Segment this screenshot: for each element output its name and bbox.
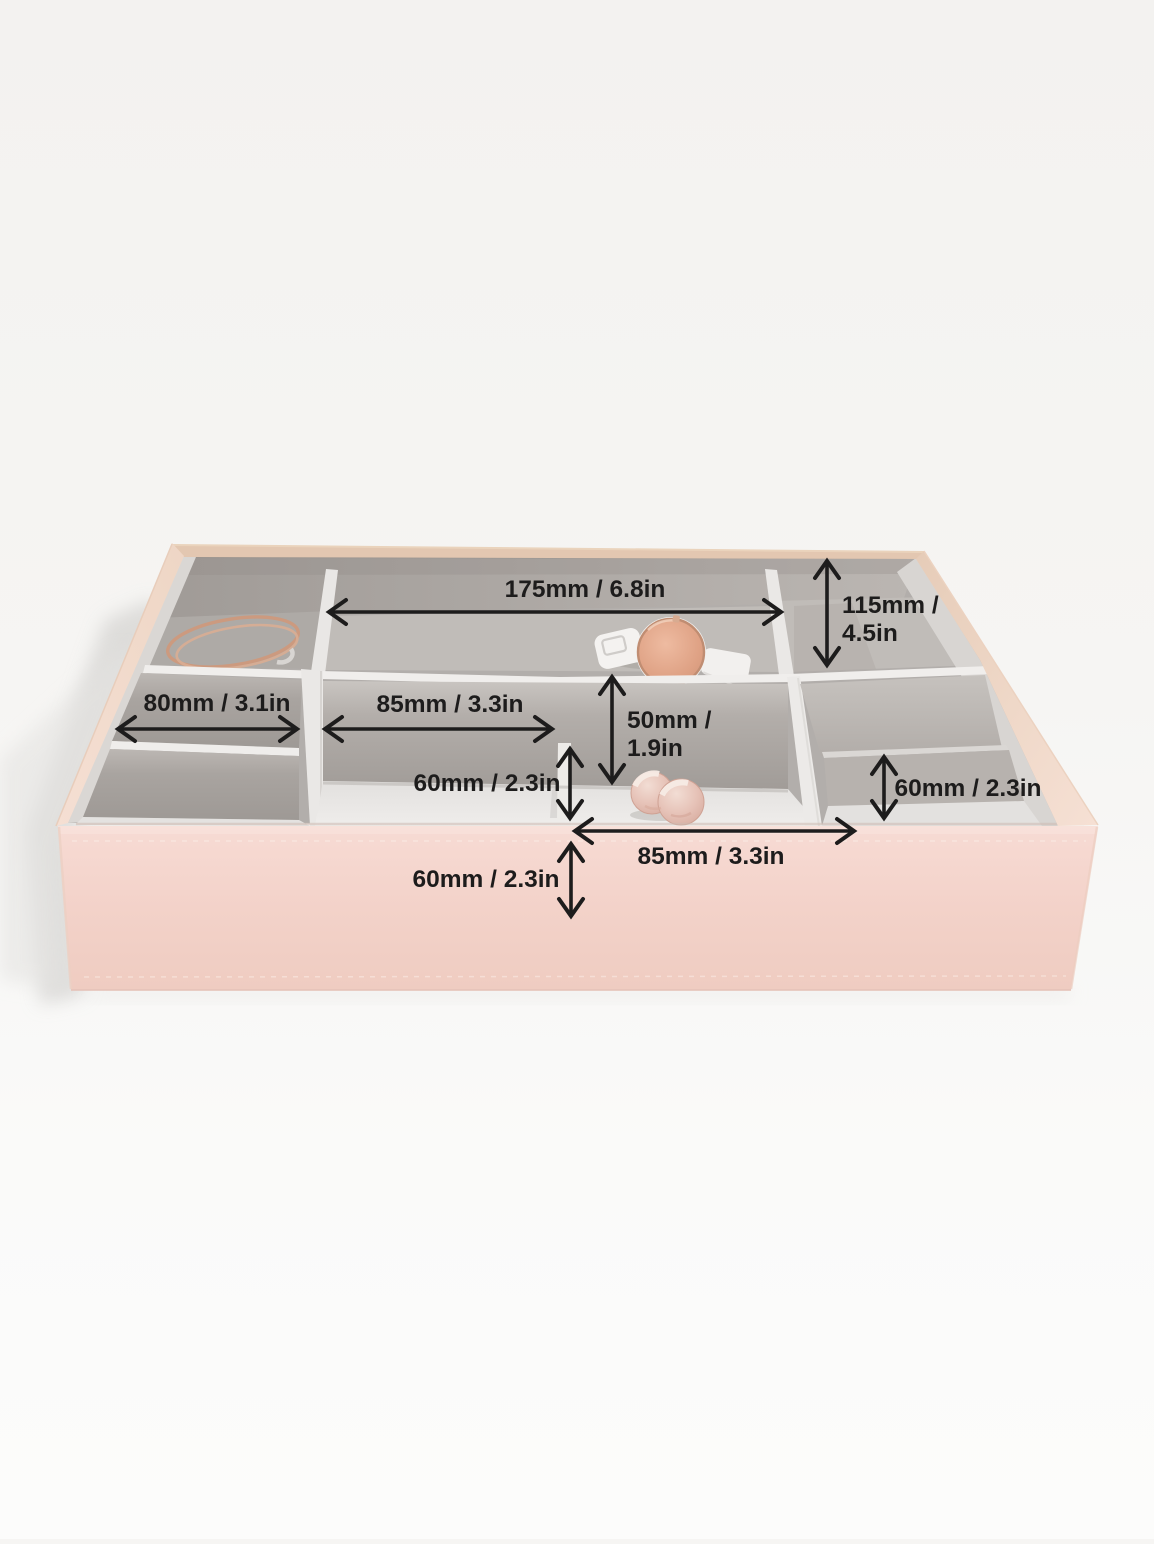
svg-text:80mm / 3.1in: 80mm / 3.1in bbox=[143, 690, 290, 717]
svg-text:4.5in: 4.5in bbox=[842, 620, 898, 647]
svg-text:50mm /: 50mm / bbox=[627, 707, 712, 734]
svg-text:115mm /: 115mm / bbox=[842, 592, 939, 619]
svg-text:85mm / 3.3in: 85mm / 3.3in bbox=[637, 843, 784, 870]
svg-text:85mm / 3.3in: 85mm / 3.3in bbox=[376, 691, 523, 718]
svg-text:175mm / 6.8in: 175mm / 6.8in bbox=[505, 576, 666, 603]
svg-text:60mm / 2.3in: 60mm / 2.3in bbox=[413, 770, 560, 797]
svg-text:60mm / 2.3in: 60mm / 2.3in bbox=[894, 775, 1041, 802]
svg-text:60mm / 2.3in: 60mm / 2.3in bbox=[412, 866, 559, 893]
svg-text:1.9in: 1.9in bbox=[627, 735, 683, 762]
